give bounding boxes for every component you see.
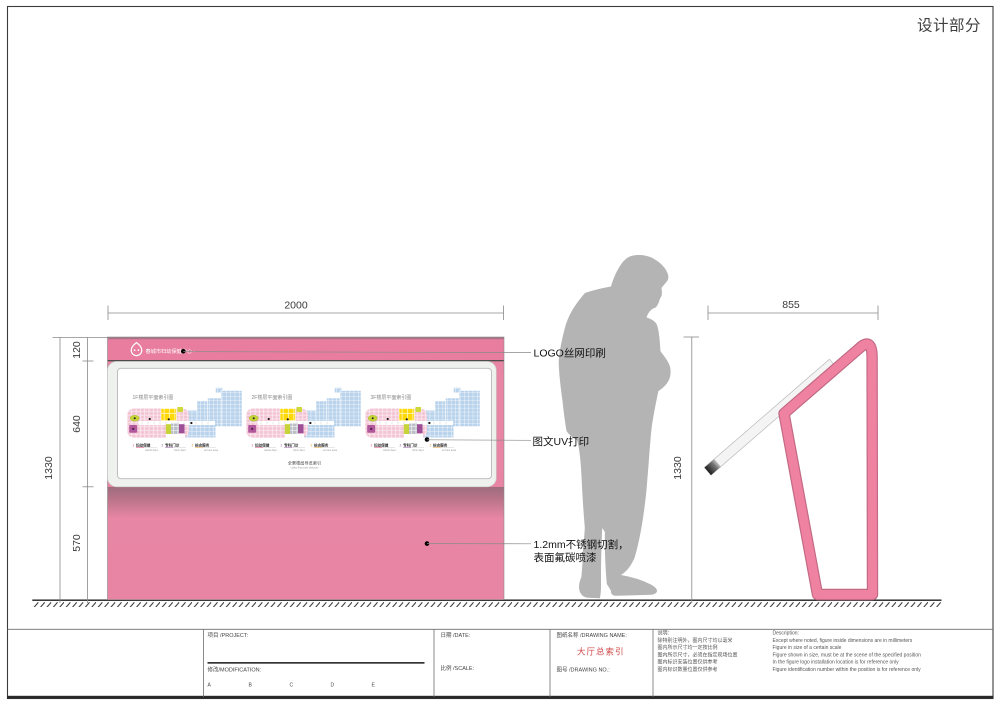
svg-text:图纸名称 /DRAWING NAME:: 图纸名称 /DRAWING NAME: bbox=[557, 631, 628, 639]
svg-text:2000: 2000 bbox=[284, 300, 308, 312]
svg-text:Figure in size of a certain sc: Figure in size of a certain scale bbox=[773, 645, 842, 651]
svg-text:LOGO丝网印刷: LOGO丝网印刷 bbox=[534, 347, 606, 360]
svg-text:除特别注明外，图内尺寸均以毫米: 除特别注明外，图内尺寸均以毫米 bbox=[658, 637, 733, 644]
svg-text:Figure shown in size, must be: Figure shown in size, must be at the sce… bbox=[773, 652, 922, 658]
svg-text:大厅总索引: 大厅总索引 bbox=[577, 647, 625, 657]
svg-text:设计部分: 设计部分 bbox=[917, 17, 981, 35]
svg-text:E: E bbox=[372, 683, 376, 689]
svg-text:120: 120 bbox=[71, 341, 83, 359]
svg-text:C: C bbox=[290, 683, 294, 689]
svg-text:1330: 1330 bbox=[43, 456, 55, 480]
svg-text:Figure identification number w: Figure identification number within the … bbox=[773, 667, 922, 673]
svg-text:表面氟碳喷漆: 表面氟碳喷漆 bbox=[534, 551, 597, 564]
svg-text:项目 /PROJECT:: 项目 /PROJECT: bbox=[208, 632, 249, 639]
svg-text:图内标识安装位置仅供参考: 图内标识安装位置仅供参考 bbox=[658, 659, 718, 666]
svg-text:D: D bbox=[331, 683, 335, 689]
svg-text:B: B bbox=[249, 683, 253, 689]
svg-text:1.2mm不锈钢切割，: 1.2mm不锈钢切割， bbox=[534, 538, 629, 551]
svg-text:Description:: Description: bbox=[773, 631, 799, 637]
svg-text:日期 /DATE:: 日期 /DATE: bbox=[441, 632, 471, 639]
svg-text:春城市妇幼保健中心™: 春城市妇幼保健中心™ bbox=[146, 347, 196, 355]
svg-text:图文UV打印: 图文UV打印 bbox=[533, 435, 590, 448]
svg-text:1330: 1330 bbox=[672, 456, 684, 480]
svg-text:2F楼层平面索引图: 2F楼层平面索引图 bbox=[252, 394, 293, 401]
svg-text:图内标识数量位置仅供参考: 图内标识数量位置仅供参考 bbox=[658, 666, 718, 673]
svg-text:说明：: 说明： bbox=[658, 630, 673, 637]
svg-text:比例 /SCALE:: 比例 /SCALE: bbox=[441, 664, 475, 672]
svg-text:Except where noted, figure ins: Except where noted, figure inside dimens… bbox=[773, 638, 913, 644]
svg-text:570: 570 bbox=[71, 534, 83, 552]
svg-text:图内所示尺寸，必须在指定现场位置: 图内所示尺寸，必须在指定现场位置 bbox=[658, 651, 738, 658]
svg-text:图内所示尺寸均一定按比例: 图内所示尺寸均一定按比例 bbox=[658, 644, 718, 651]
svg-text:修改/MODIFICATION:: 修改/MODIFICATION: bbox=[208, 666, 262, 674]
svg-text:图号 /DRAWING NO.:: 图号 /DRAWING NO.: bbox=[557, 666, 611, 674]
svg-text:A: A bbox=[208, 683, 212, 689]
svg-text:1F楼层平面索引图: 1F楼层平面索引图 bbox=[133, 394, 174, 401]
svg-text:3F楼层平面索引图: 3F楼层平面索引图 bbox=[371, 394, 412, 401]
svg-text:In the figure logo installatio: In the figure logo installation location… bbox=[773, 660, 900, 666]
svg-text:855: 855 bbox=[782, 299, 800, 311]
svg-text:640: 640 bbox=[71, 415, 83, 433]
svg-text:Lobby floor plan directory: Lobby floor plan directory bbox=[290, 466, 319, 469]
